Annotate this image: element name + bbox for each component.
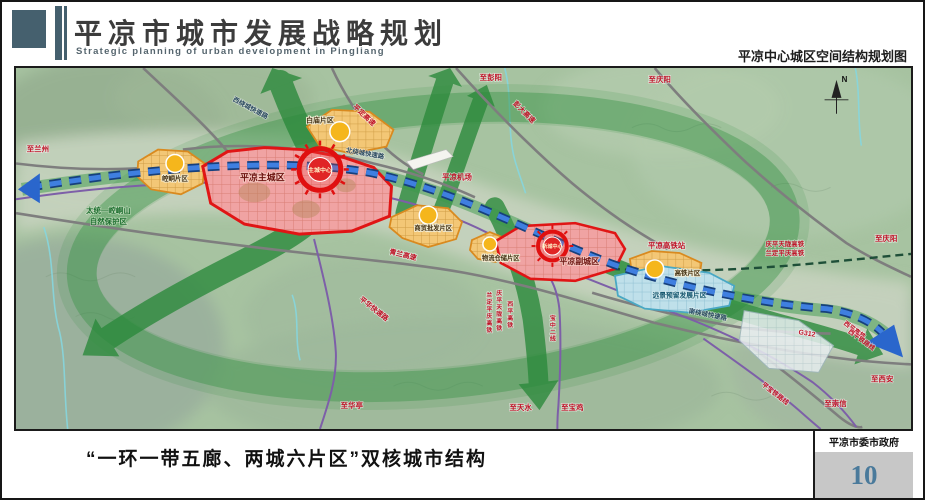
dot-hsr <box>646 260 664 278</box>
label-qptl-hsr: 庆平天陇高铁 <box>764 239 804 248</box>
label-sub-center: 新城中心 <box>542 242 563 250</box>
label-to-huating: 至华亭 <box>341 400 364 410</box>
dot-trade <box>419 206 437 224</box>
label-to-baoji: 至宝鸡 <box>561 402 584 412</box>
label-baozhong-line2: 宝中二线 <box>548 314 555 343</box>
map-subtitle: 平凉中心城区空间结构规划图 <box>738 46 907 65</box>
agency-label: 平凉市委市政府 <box>815 431 913 452</box>
label-to-qingyang-east: 至庆阳 <box>875 233 897 243</box>
compass-n-label: N <box>842 75 848 84</box>
label-reserve: 远景预留发展片区 <box>653 291 707 300</box>
label-xiping-hsr-vertical: 西平高铁 <box>506 300 513 329</box>
logo-square <box>12 10 46 48</box>
logo-bars <box>55 6 67 60</box>
label-hsr-station: 平凉高铁站 <box>648 240 686 250</box>
footer-caption: “一环一带五廊、两城六片区”双核城市结构 <box>86 444 487 471</box>
label-to-tianshui: 至天水 <box>509 402 532 412</box>
label-to-lanzhou: 至兰州 <box>27 144 49 154</box>
label-main-center: 主城中心 <box>308 166 332 174</box>
label-main-city: 平凉主城区 <box>240 171 285 182</box>
page-number-box: 平凉市委市政府 10 <box>813 431 913 498</box>
label-nature-reserve-1: 太统—崆峒山 <box>86 205 131 215</box>
label-to-chongxin: 至崇信 <box>824 398 847 408</box>
label-logistics: 物流仓储片区 <box>482 253 520 262</box>
label-airport: 平凉机场 <box>442 171 472 181</box>
label-baimiao: 白庙片区 <box>306 116 334 125</box>
label-sub-city: 平凉副城区 <box>559 256 599 266</box>
label-nature-reserve-2: 自然保护区 <box>90 216 128 226</box>
dot-kongtong <box>166 155 184 173</box>
map-canvas: N 平凉主城区 主城中心 平凉副城区 新城中心 崆峒片区 白庙片区 商贸批发片区… <box>16 68 911 429</box>
page-title-english: Strategic planning of urban development … <box>76 46 385 57</box>
page-number: 10 <box>815 452 913 498</box>
label-to-qingyang-top: 至庆阳 <box>649 74 671 84</box>
plan-map: N 平凉主城区 主城中心 平凉副城区 新城中心 崆峒片区 白庙片区 商贸批发片区… <box>14 66 913 431</box>
dot-logistics <box>483 237 497 251</box>
label-trade: 商贸批发片区 <box>414 223 452 232</box>
label-to-pengyang: 至彭阳 <box>480 72 502 82</box>
label-ldpq-hsr: 兰定平庆高铁 <box>765 248 804 257</box>
label-hsr-district: 高铁片区 <box>675 268 701 277</box>
label-kongtong: 崆峒片区 <box>162 173 188 182</box>
label-to-xian: 至西安 <box>871 373 894 383</box>
plan-page: 平凉市城市发展战略规划 Strategic planning of urban … <box>0 0 925 500</box>
